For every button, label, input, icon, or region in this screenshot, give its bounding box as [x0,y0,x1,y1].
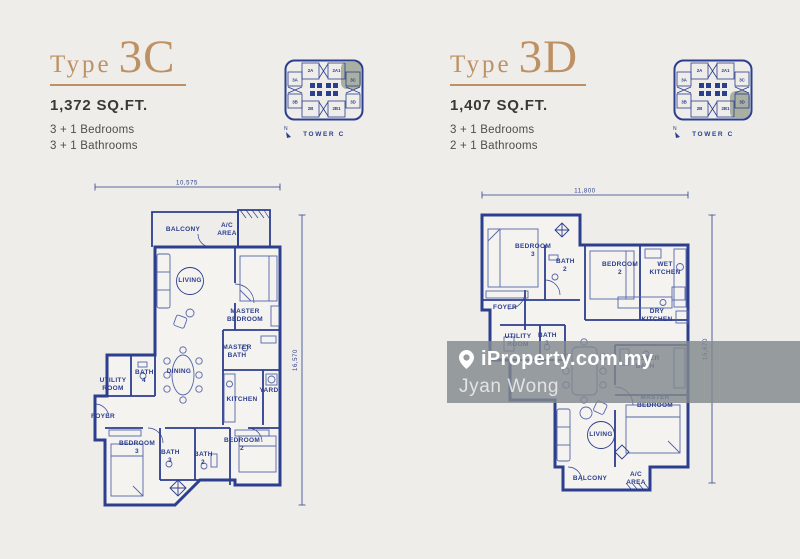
room-label: BEDROOM 3 [119,440,155,457]
svg-text:2B: 2B [308,106,314,111]
svg-text:3D: 3D [739,100,745,105]
highlighted-unit-3c [341,62,361,89]
room-label: KITCHEN [222,396,262,404]
room-label: BEDROOM 3 [515,243,551,260]
title-rule [450,84,586,86]
svg-text:3D: 3D [350,100,356,105]
tower-key-3c: 2A 2A1 3A 3C 3B 3D 2B 2B1 TOWER C N [283,58,365,138]
room-label: DRY KITCHEN [639,308,675,325]
type-title: Type3D [450,34,690,81]
room-label: BEDROOM 2 [602,261,638,278]
area-sqft: 1,407 SQ.FT. [450,97,690,114]
compass-icon: N [282,124,292,140]
watermark-brand-text: iProperty.com.my [481,348,653,371]
room-label: BATH 2 [556,258,574,275]
room-label: BEDROOM 2 [224,437,260,454]
room-label: A/C AREA [623,471,649,488]
room-label: MASTER BEDROOM [220,308,270,325]
bathrooms-line: 3 + 1 Bathrooms [50,138,290,154]
svg-text:2A: 2A [697,68,703,73]
width-dimension: 11,800 [574,189,596,195]
svg-text:3A: 3A [292,78,298,83]
type-code: 3D [519,31,578,83]
room-label: BATH 4 [135,369,153,386]
ac-hatch [240,210,269,218]
tower-diagram-icon: 2A 2A1 3A 3C 3B 3D 2B 2B1 [672,58,754,122]
room-label: LIVING [165,277,215,285]
room-label: MASTER BATH [217,344,257,361]
room-label: BALCONY [565,475,615,483]
svg-text:3C: 3C [739,78,745,83]
header-type-3d: Type3D 1,407 SQ.FT. 3 + 1 Bedrooms 2 + 1… [450,34,690,154]
floor-plan-brochure: Type3C 1,372 SQ.FT. 3 + 1 Bedrooms 3 + 1… [0,0,800,559]
spec-lines: 3 + 1 Bedrooms 3 + 1 Bathrooms [50,122,290,154]
tower-name: TOWER C [672,131,754,138]
tower-core [310,83,338,96]
svg-text:2B1: 2B1 [332,106,341,111]
room-label: DINING [154,368,204,376]
svg-text:3A: 3A [681,78,687,83]
tower-name: TOWER C [283,131,365,138]
map-pin-icon [459,350,474,369]
room-label: BATH 3 [161,449,179,466]
svg-text:3C: 3C [350,78,356,83]
header-type-3c: Type3C 1,372 SQ.FT. 3 + 1 Bedrooms 3 + 1… [50,34,290,154]
title-rule [50,84,186,86]
tower-core [699,83,727,96]
room-label: FOYER [87,413,119,421]
tower-key-3d: 2A 2A1 3A 3C 3B 3D 2B 2B1 TOWER C N [672,58,754,138]
svg-text:N: N [673,126,677,132]
svg-text:2B1: 2B1 [721,106,730,111]
compass-icon: N [671,124,681,140]
bedrooms-line: 3 + 1 Bedrooms [450,122,690,138]
room-label: A/C AREA [212,222,242,239]
svg-text:2B: 2B [697,106,703,111]
type-code: 3C [119,31,176,83]
bathrooms-line: 2 + 1 Bathrooms [450,138,690,154]
svg-text:3B: 3B [292,100,298,105]
spec-lines: 3 + 1 Bedrooms 2 + 1 Bathrooms [450,122,690,154]
room-label: UTILITY ROOM [95,377,131,394]
bedrooms-line: 3 + 1 Bedrooms [50,122,290,138]
svg-text:2A: 2A [308,68,314,73]
room-label: FOYER [490,304,520,312]
height-dimension: 16,570 [293,349,299,371]
type-word: Type [50,51,112,78]
type-word: Type [450,51,512,78]
width-dimension: 10,575 [176,181,198,187]
room-label: YARD [255,387,283,395]
area-sqft: 1,372 SQ.FT. [50,97,290,114]
svg-text:2A1: 2A1 [721,68,730,73]
watermark-overlay: iProperty.com.my Jyan Wong [447,341,800,403]
highlighted-unit-3d [730,91,750,118]
room-label: LIVING [576,431,626,439]
svg-text:2A1: 2A1 [332,68,341,73]
type-title: Type3C [50,34,290,81]
svg-text:3B: 3B [681,100,687,105]
room-label: WET KITCHEN [647,261,683,278]
watermark-user: Jyan Wong [459,376,800,398]
room-label: BALCONY [153,226,213,234]
tower-diagram-icon: 2A 2A1 3A 3C 3B 3D 2B 2B1 [283,58,365,122]
room-label: BATH 2 [194,451,212,468]
svg-text:N: N [284,126,288,132]
floorplan-3c: 10,575 16,570 [93,178,308,513]
watermark-brand: iProperty.com.my [459,348,800,371]
